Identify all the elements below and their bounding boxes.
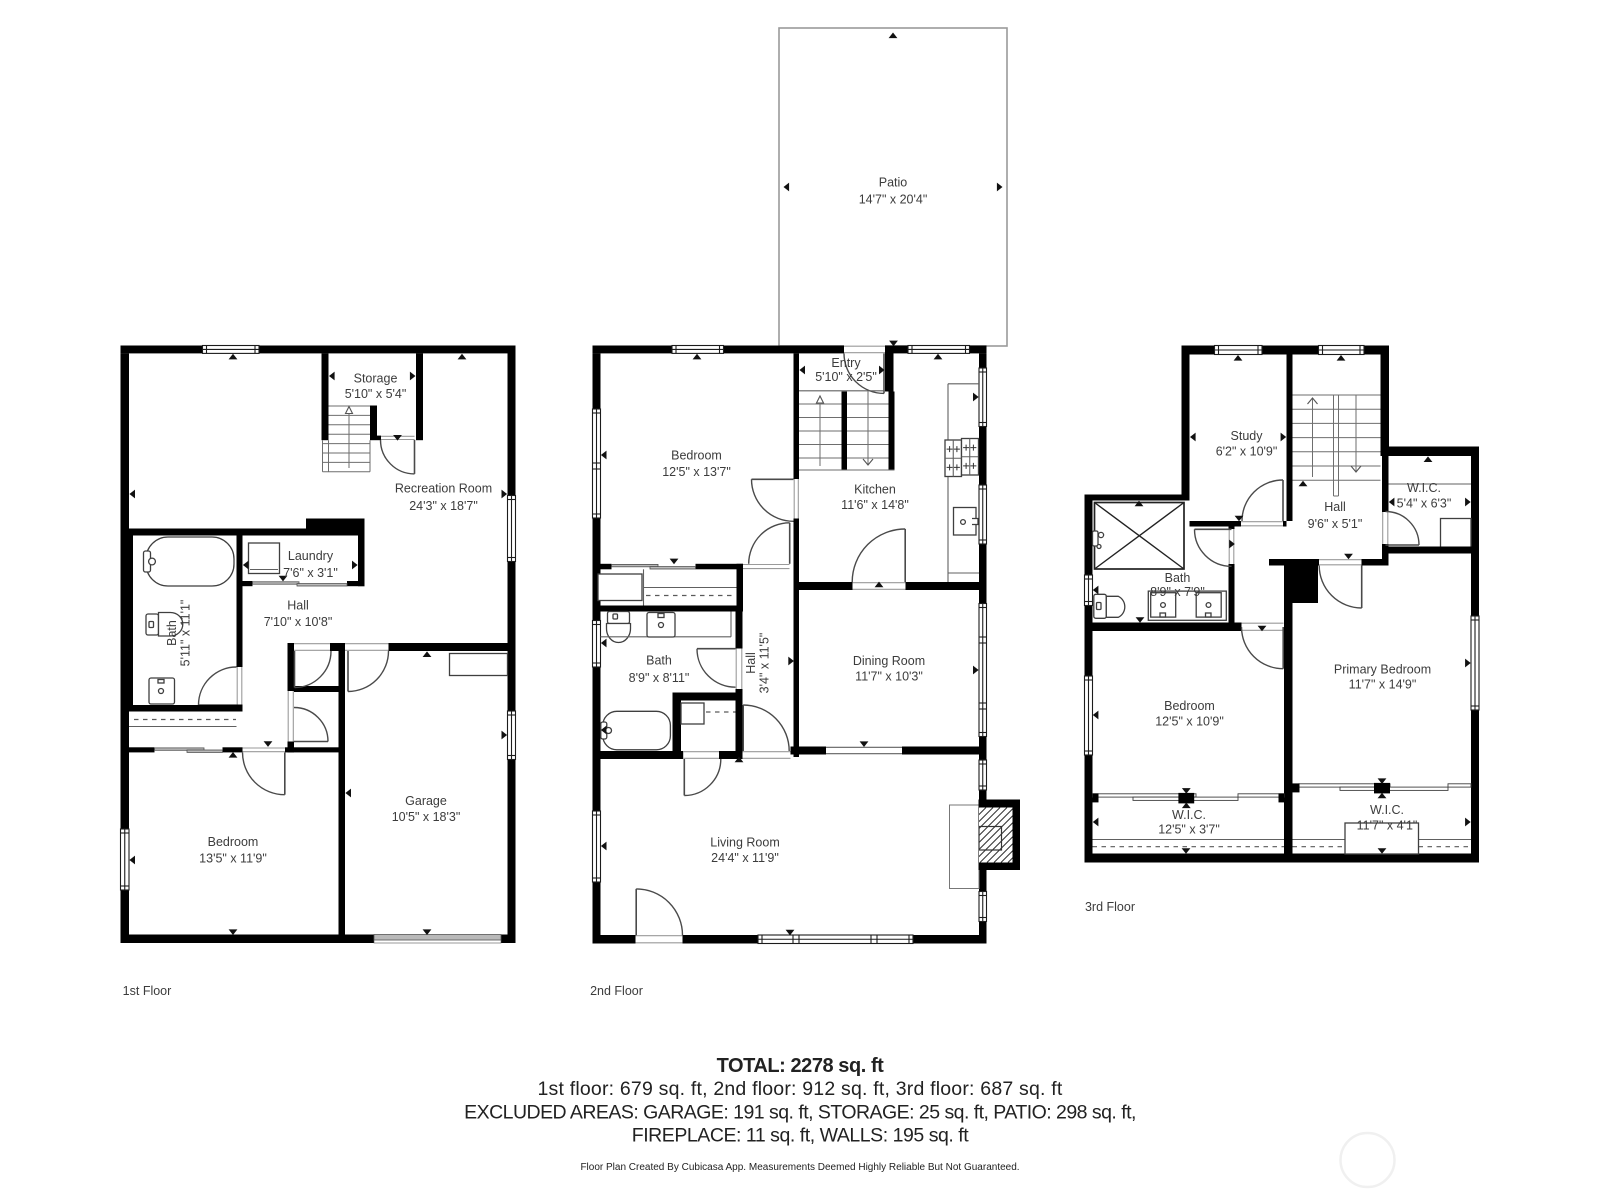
svg-text:Bath: Bath [165,620,179,646]
svg-text:10'5" x 18'3": 10'5" x 18'3" [392,810,461,824]
svg-text:Storage: Storage [354,372,398,386]
svg-text:Kitchen: Kitchen [854,482,896,496]
svg-text:5'10" x 5'4": 5'10" x 5'4" [345,387,407,401]
svg-text:9'6" x 5'1": 9'6" x 5'1" [1308,517,1363,531]
svg-text:W.I.C.: W.I.C. [1370,803,1404,817]
svg-text:7'6" x 3'1": 7'6" x 3'1" [283,566,338,580]
svg-text:Hall: Hall [287,598,309,612]
svg-text:5'4" x 6'3": 5'4" x 6'3" [1397,496,1452,510]
svg-text:Hall: Hall [1324,500,1346,514]
svg-text:Floor Plan Created By Cubicasa: Floor Plan Created By Cubicasa App. Meas… [580,1162,1019,1173]
svg-text:Bedroom: Bedroom [671,448,722,462]
svg-text:3rd Floor: 3rd Floor [1085,900,1135,914]
svg-text:Bath: Bath [646,654,672,668]
svg-text:Bedroom: Bedroom [208,835,259,849]
svg-text:3'4" x 11'5": 3'4" x 11'5" [758,633,772,694]
svg-text:11'6" x 14'8": 11'6" x 14'8" [841,498,909,512]
svg-text:Laundry: Laundry [288,549,334,563]
svg-text:2nd Floor: 2nd Floor [590,984,643,998]
svg-text:24'3" x 18'7": 24'3" x 18'7" [409,499,478,513]
svg-text:11'7" x 14'9": 11'7" x 14'9" [1349,678,1417,692]
svg-text:13'5" x 11'9": 13'5" x 11'9" [199,851,267,865]
svg-text:7'10" x 10'8": 7'10" x 10'8" [264,615,333,629]
svg-text:Entry: Entry [831,356,861,370]
svg-text:Hall: Hall [744,652,758,674]
svg-text:Patio: Patio [879,176,908,190]
svg-text:1st floor: 679 sq. ft, 2nd flo: 1st floor: 679 sq. ft, 2nd floor: 912 sq… [537,1078,1062,1100]
svg-text:Living Room: Living Room [710,835,779,849]
svg-text:11'7" x 10'3": 11'7" x 10'3" [855,670,923,684]
svg-text:12'5" x 3'7": 12'5" x 3'7" [1158,823,1220,837]
svg-text:14'7" x 20'4": 14'7" x 20'4" [859,192,928,206]
svg-text:Garage: Garage [405,794,447,808]
svg-text:Study: Study [1231,429,1264,443]
svg-text:6'2" x 10'9": 6'2" x 10'9" [1216,445,1278,459]
svg-text:12'5" x 13'7": 12'5" x 13'7" [662,465,731,479]
svg-text:Bedroom: Bedroom [1164,699,1215,713]
svg-text:11'7" x 4'1": 11'7" x 4'1" [1357,819,1418,833]
svg-text:Primary Bedroom: Primary Bedroom [1334,663,1431,677]
svg-text:Bath: Bath [1165,571,1191,585]
svg-text:12'5" x 10'9": 12'5" x 10'9" [1155,714,1224,728]
svg-text:Recreation Room: Recreation Room [395,482,492,496]
svg-text:5'10" x 2'5": 5'10" x 2'5" [815,370,877,384]
svg-text:5'11" x 11'1": 5'11" x 11'1" [179,600,193,667]
svg-text:FIREPLACE: 11 sq. ft, WALLS: 1: FIREPLACE: 11 sq. ft, WALLS: 195 sq. ft [632,1125,970,1147]
svg-text:EXCLUDED AREAS: GARAGE: 191 sq: EXCLUDED AREAS: GARAGE: 191 sq. ft, STOR… [464,1102,1136,1124]
svg-text:24'4" x 11'9": 24'4" x 11'9" [711,851,779,865]
svg-text:TOTAL: 2278 sq. ft: TOTAL: 2278 sq. ft [717,1055,885,1077]
svg-text:8'9" x 8'11": 8'9" x 8'11" [629,671,690,685]
svg-text:W.I.C.: W.I.C. [1172,808,1206,822]
svg-text:W.I.C.: W.I.C. [1407,481,1441,495]
svg-text:1st Floor: 1st Floor [123,984,172,998]
svg-text:Dining Room: Dining Room [853,654,925,668]
svg-text:8'9" x 7'9": 8'9" x 7'9" [1150,585,1205,599]
